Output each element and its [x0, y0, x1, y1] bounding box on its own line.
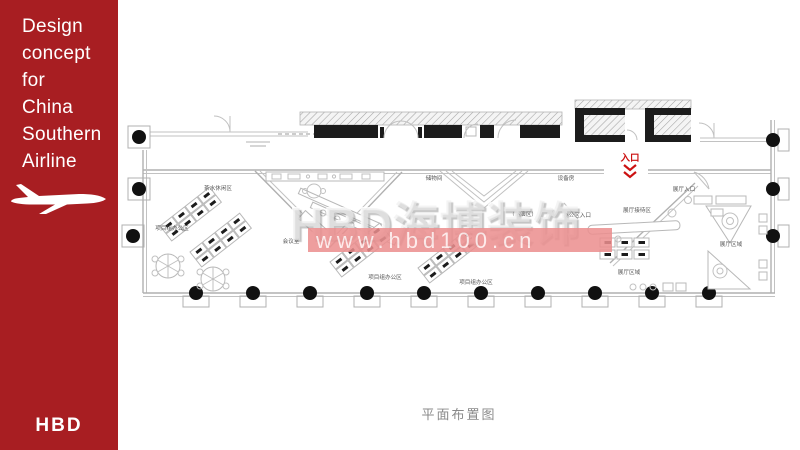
- room-label: 展厅入口: [673, 186, 695, 193]
- room-label: 项目组办公区: [368, 273, 402, 281]
- slide-root: Design concept for China Southern Airlin…: [0, 0, 800, 450]
- room-label: 展厅区域: [720, 240, 743, 248]
- entrance-arrow-icon: [624, 172, 636, 177]
- main-hall-walls: [143, 120, 775, 297]
- room-label: 设备房: [558, 174, 575, 182]
- room-label: 储物间: [426, 174, 443, 182]
- entrance-marker: 入口: [619, 153, 639, 177]
- top-service-strip: [150, 100, 766, 146]
- floor-plan-drawing: 入口 茶水休闲区项目组办公区会议室项目组办公区项目组办公区储物间（路演区）设备房…: [118, 0, 800, 450]
- room-label: 茶水休闲区: [204, 184, 232, 192]
- watermark-band: www.hbd100.cn: [308, 228, 612, 252]
- room-label: （路演区）: [509, 210, 537, 218]
- watermark-url: www.hbd100.cn: [308, 228, 612, 253]
- title-line: for: [22, 67, 118, 94]
- room-label: 项目组办公区: [459, 278, 493, 286]
- entrance-arrow-icon: [624, 165, 636, 170]
- title-line: Design: [22, 13, 118, 40]
- plan-caption: 平面布置图: [118, 404, 800, 423]
- entrance-label: 入口: [619, 153, 639, 164]
- sidebar: Design concept for China Southern Airlin…: [0, 0, 118, 450]
- slide-title: Design concept for China Southern Airlin…: [0, 0, 118, 175]
- room-label: 会议室: [283, 237, 300, 245]
- room-label: 展厅区域: [618, 268, 641, 276]
- title-line: China: [22, 94, 118, 121]
- airplane-icon: [9, 180, 109, 218]
- room-label: 展厅接待区: [623, 206, 651, 214]
- room-label: 项目组办公区: [155, 224, 189, 232]
- floor-plan-area: 入口 茶水休闲区项目组办公区会议室项目组办公区项目组办公区储物间（路演区）设备房…: [118, 0, 800, 450]
- title-line: Southern: [22, 121, 118, 148]
- room-label: 办公区入口: [563, 211, 591, 219]
- title-line: Airline: [22, 148, 118, 175]
- hbd-logo: HBD: [0, 415, 118, 437]
- title-line: concept: [22, 40, 118, 67]
